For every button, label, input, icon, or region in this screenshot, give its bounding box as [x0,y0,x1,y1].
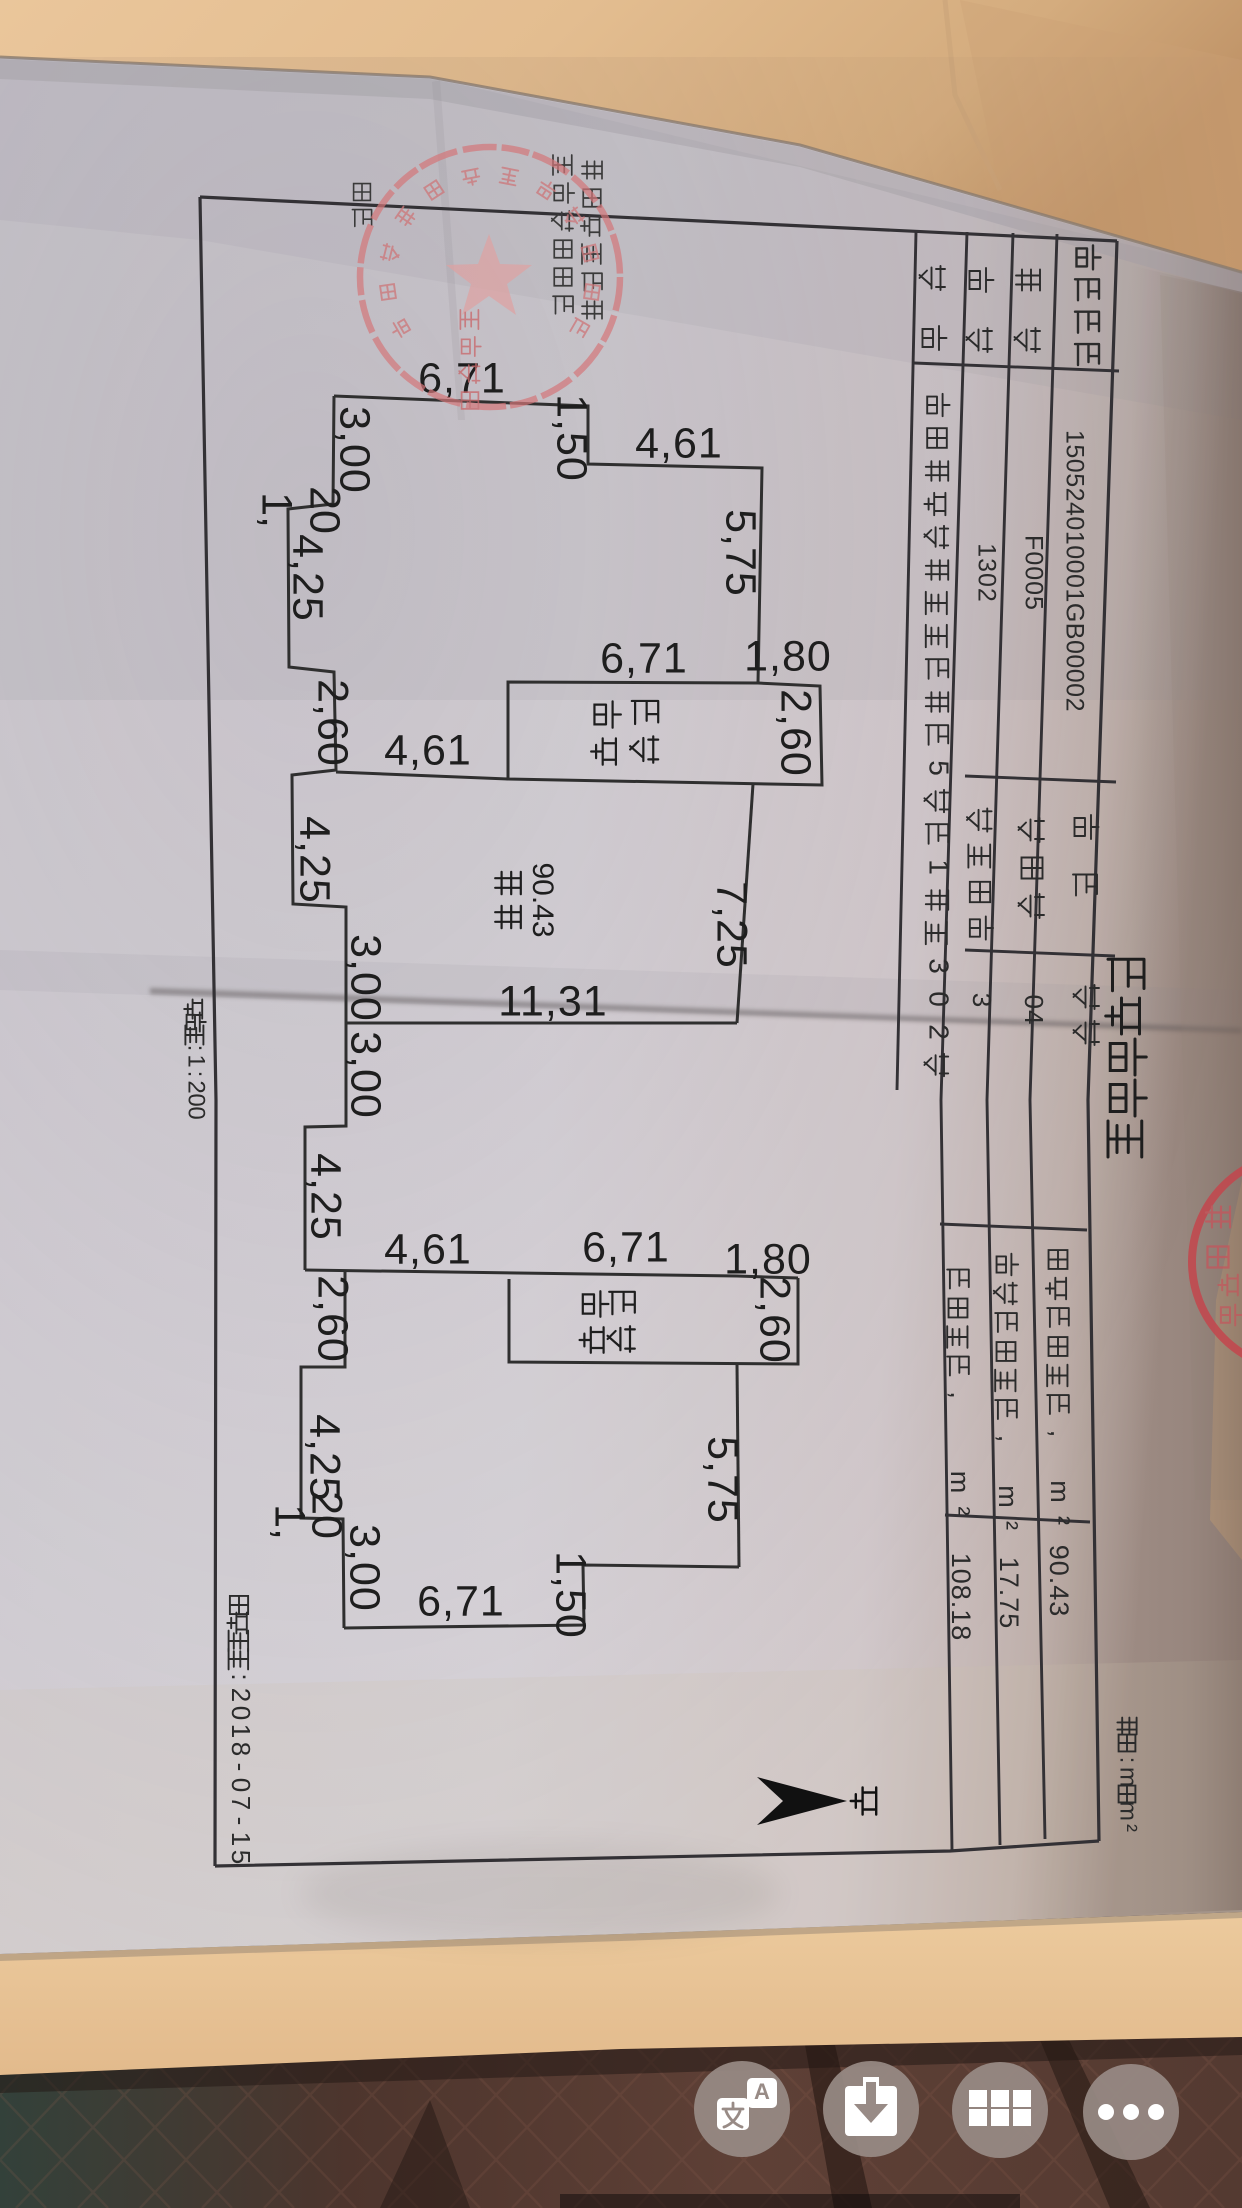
svg-text:1: 1 [183,1054,210,1067]
svg-text:,: , [993,1435,1023,1443]
svg-text:3,00: 3,00 [342,934,390,1022]
svg-text:150524010001GB00002: 150524010001GB00002 [1060,430,1088,712]
svg-text:5,75: 5,75 [699,1436,747,1524]
svg-text:7: 7 [226,1796,256,1810]
svg-text:-: - [226,1763,256,1772]
svg-text:1,80: 1,80 [744,632,832,680]
svg-text:-: - [226,1817,256,1826]
svg-text:²: ² [993,1521,1023,1530]
svg-text:6,71: 6,71 [417,1577,505,1625]
svg-text:3,00: 3,00 [342,1031,390,1119]
svg-text:,: , [945,1391,975,1399]
svg-text:5: 5 [226,1850,256,1864]
svg-text:3: 3 [967,993,997,1007]
svg-text:1,50: 1,50 [547,1551,595,1639]
svg-text::: : [183,1045,210,1052]
svg-text:108.18: 108.18 [946,1553,976,1642]
svg-text:2,60: 2,60 [772,689,820,777]
svg-text:11,31: 11,31 [498,977,607,1025]
svg-text:m: m [1115,1801,1142,1821]
svg-text:2,60: 2,60 [309,1275,357,1363]
svg-text:17.75: 17.75 [994,1557,1024,1630]
svg-text:90.43: 90.43 [526,862,559,937]
svg-text:20: 20 [301,486,349,534]
svg-text:0: 0 [183,1106,210,1119]
svg-text:4,61: 4,61 [384,1225,472,1273]
svg-text:2,60: 2,60 [751,1276,799,1364]
svg-text:4,25: 4,25 [284,534,332,622]
svg-text:2,60: 2,60 [309,679,357,767]
svg-text:1302: 1302 [972,543,1000,603]
svg-text:3: 3 [924,958,955,974]
svg-text:1: 1 [226,1832,256,1846]
svg-text:6,71: 6,71 [600,634,688,682]
svg-text:6,71: 6,71 [582,1223,670,1271]
svg-text:²: ² [1115,1824,1142,1832]
svg-text:A: A [754,2079,770,2104]
svg-text:8: 8 [226,1742,256,1756]
svg-text:2: 2 [226,1688,256,1702]
svg-text:20: 20 [303,1491,351,1539]
svg-text:²: ² [1045,1516,1075,1525]
svg-text::: : [183,1071,210,1078]
svg-text:²: ² [945,1507,975,1516]
svg-text:04: 04 [1019,995,1049,1026]
svg-text:1,: 1, [253,492,301,528]
svg-text:0: 0 [183,1093,210,1106]
svg-text:2: 2 [183,1080,210,1093]
svg-text:3,00: 3,00 [331,406,379,494]
svg-text:90.43: 90.43 [1044,1545,1074,1618]
svg-text::: : [1115,1757,1142,1764]
svg-text:4,25: 4,25 [291,816,339,904]
svg-text:1,50: 1,50 [548,394,596,482]
svg-text:m: m [1045,1480,1075,1503]
svg-text:0: 0 [226,1706,256,1720]
svg-text:0: 0 [226,1778,256,1792]
svg-text:4,25: 4,25 [301,1414,349,1502]
svg-text::: : [226,1673,256,1680]
svg-text:1: 1 [924,859,955,875]
svg-text:4,25: 4,25 [302,1153,350,1241]
svg-text:5,75: 5,75 [717,509,765,597]
svg-text:4,61: 4,61 [635,419,723,467]
svg-text:5: 5 [924,760,955,776]
svg-text:m: m [1115,1767,1142,1787]
svg-text:,: , [1045,1430,1075,1438]
svg-text:m: m [993,1485,1023,1508]
svg-text:1: 1 [226,1724,256,1738]
svg-text:0: 0 [924,991,955,1007]
svg-text:F0005: F0005 [1019,535,1047,611]
svg-text:4,61: 4,61 [384,726,472,774]
svg-text:m: m [945,1471,975,1494]
svg-text:2: 2 [924,1024,955,1040]
svg-text:7,25: 7,25 [708,881,756,969]
